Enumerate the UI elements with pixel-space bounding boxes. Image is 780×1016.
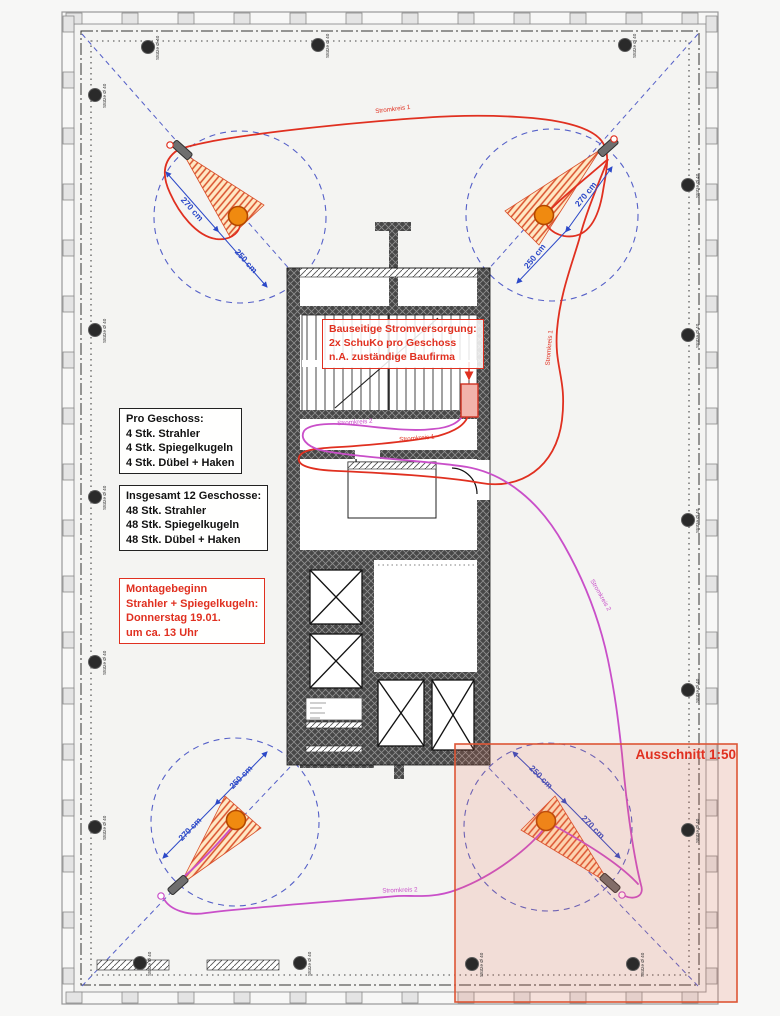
- column-marker: [142, 41, 155, 54]
- ausschnitt-zone: [455, 744, 737, 1002]
- total-line: Insgesamt 12 Geschosse:: [126, 489, 261, 504]
- power-note-line: Bauseitige Stromversorgung:: [329, 323, 477, 337]
- column-marker: [89, 324, 102, 337]
- power-supply-note: Bauseitige Stromversorgung: 2x SchuKo pr…: [322, 319, 484, 369]
- column-label: Stütze Ø 40: [102, 815, 107, 840]
- column-marker: [682, 824, 695, 837]
- montage-line: um ca. 13 Uhr: [126, 626, 258, 641]
- column-marker: [682, 179, 695, 192]
- ausschnitt-label: Ausschnitt 1:50: [558, 747, 736, 762]
- column-marker: [682, 329, 695, 342]
- column-marker: [134, 957, 147, 970]
- column-marker: [619, 39, 632, 52]
- column-label: Stütze Ø 40: [640, 952, 645, 977]
- power-note-line: 2x SchuKo pro Geschoss: [329, 337, 477, 351]
- column-label: Stütze Ø 40: [632, 33, 637, 58]
- column-label: Stütze Ø 40: [695, 508, 700, 533]
- column-label: Stütze Ø 40: [325, 33, 330, 58]
- total-note: Insgesamt 12 Geschosse: 48 Stk. Strahler…: [119, 485, 268, 551]
- per-floor-line: Pro Geschoss:: [126, 412, 235, 427]
- column-label: Stütze Ø 40: [307, 951, 312, 976]
- column-marker: [89, 821, 102, 834]
- column-label: Stütze Ø 40: [102, 650, 107, 675]
- hatched-strip: [97, 960, 169, 970]
- column-marker: [312, 39, 325, 52]
- montage-line: Donnerstag 19.01.: [126, 611, 258, 626]
- column-label: Stütze Ø 40: [479, 952, 484, 977]
- column-label: Stütze Ø 40: [155, 35, 160, 60]
- column-marker: [89, 491, 102, 504]
- column-label: Stütze Ø 40: [102, 318, 107, 343]
- per-floor-line: 4 Stk. Spiegelkugeln: [126, 441, 235, 456]
- schuko-outlet: [461, 384, 478, 417]
- circuit2-label: Stromkreis 2: [382, 886, 418, 894]
- column-marker: [89, 656, 102, 669]
- column-label: Stütze Ø 40: [102, 83, 107, 108]
- column-label: Stütze Ø 40: [695, 678, 700, 703]
- montage-line: Strahler + Spiegelkugeln:: [126, 597, 258, 612]
- column-marker: [627, 958, 640, 971]
- total-line: 48 Stk. Dübel + Haken: [126, 533, 261, 548]
- column-marker: [682, 684, 695, 697]
- column-label: Stütze Ø 40: [695, 818, 700, 843]
- column-marker: [466, 958, 479, 971]
- column-marker: [89, 89, 102, 102]
- power-note-line: n.A. zuständige Baufirma: [329, 351, 477, 365]
- montage-note: Montagebeginn Strahler + Spiegelkugeln: …: [119, 578, 265, 644]
- column-label: Stütze Ø 40: [147, 951, 152, 976]
- column-label: Stütze Ø 40: [695, 173, 700, 198]
- hatched-strip: [207, 960, 279, 970]
- column-label: Stütze Ø 40: [102, 485, 107, 510]
- per-floor-note: Pro Geschoss: 4 Stk. Strahler 4 Stk. Spi…: [119, 408, 242, 474]
- column-marker: [294, 957, 307, 970]
- column-marker: [682, 514, 695, 527]
- building-core: [287, 222, 490, 779]
- per-floor-line: 4 Stk. Dübel + Haken: [126, 456, 235, 471]
- floor-plan-canvas: 270 cm 250 cm 270 cm 250 cm 250 cm 270 c…: [0, 0, 780, 1016]
- column-label: Stütze Ø 40: [695, 323, 700, 348]
- floor-plan-drawing: 270 cm 250 cm 270 cm 250 cm 250 cm 270 c…: [0, 0, 780, 1016]
- total-line: 48 Stk. Spiegelkugeln: [126, 518, 261, 533]
- total-line: 48 Stk. Strahler: [126, 504, 261, 519]
- montage-line: Montagebeginn: [126, 582, 258, 597]
- per-floor-line: 4 Stk. Strahler: [126, 427, 235, 442]
